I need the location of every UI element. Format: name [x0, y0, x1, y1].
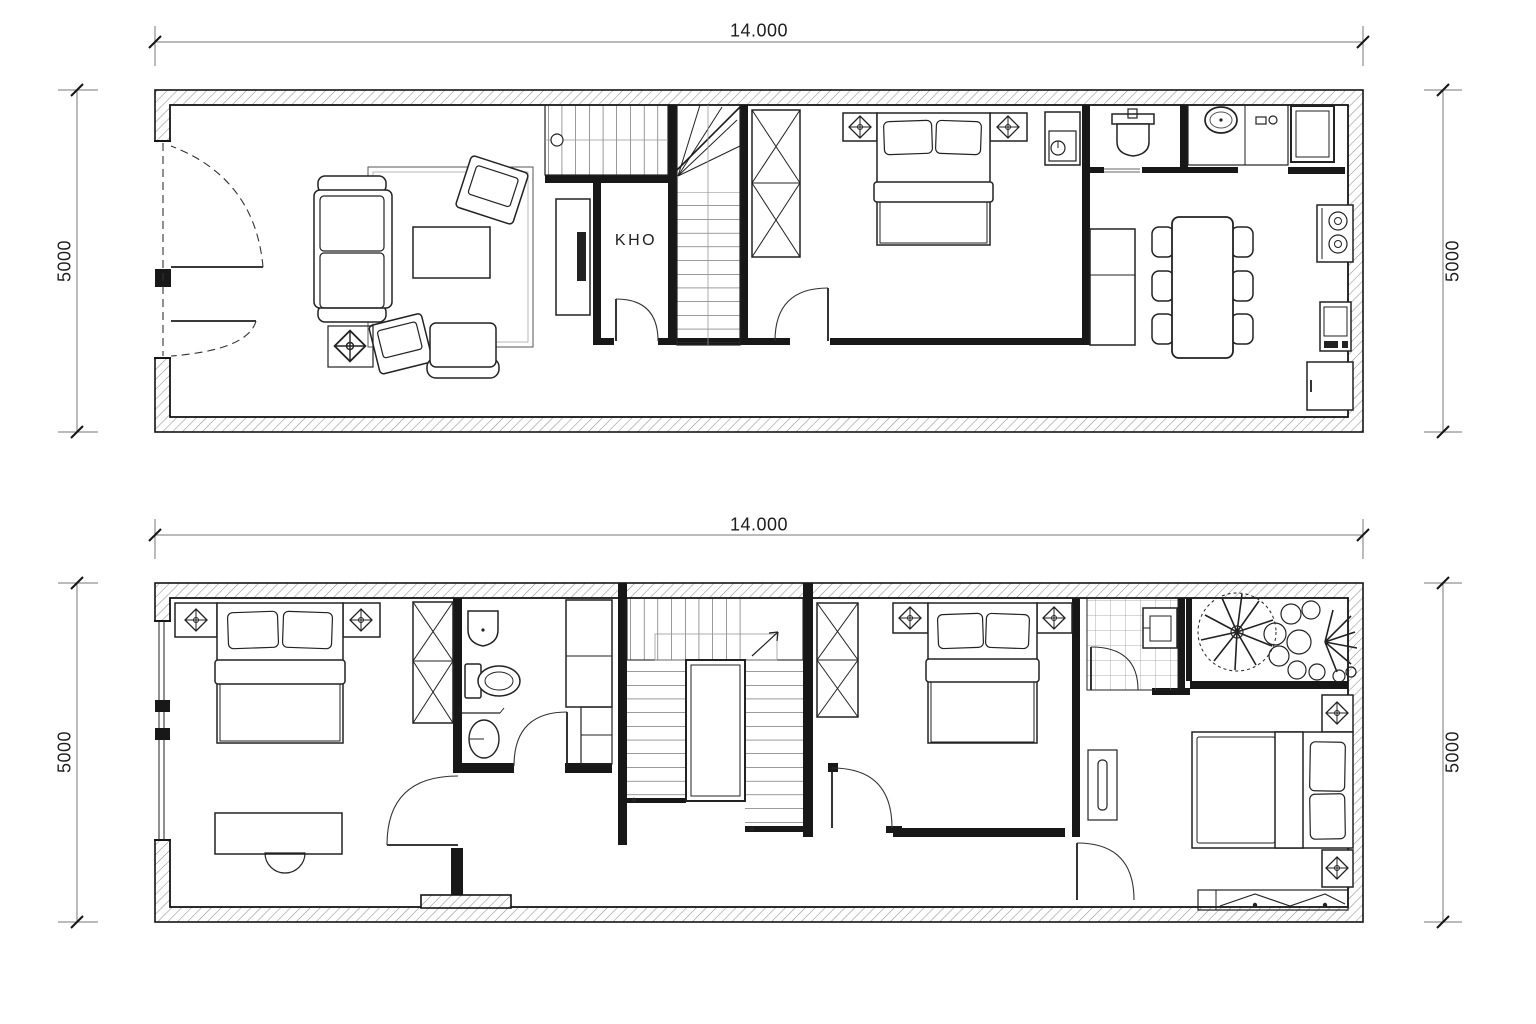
ground-floor-plan	[58, 26, 1462, 438]
toilet	[465, 664, 520, 698]
wash-basin	[1143, 608, 1177, 648]
room-label-storage: KHO	[615, 232, 657, 250]
appliance	[1320, 302, 1351, 351]
sofa	[314, 176, 392, 322]
floor-plan-drawing	[0, 0, 1536, 1024]
laundry-basin	[469, 720, 499, 758]
wardrobe	[413, 602, 453, 723]
dining-table	[1172, 217, 1233, 358]
double-bed	[874, 113, 993, 245]
dimension-label-width-top: 14.000	[730, 21, 788, 42]
dimension-label-width-bottom: 14.000	[730, 515, 788, 536]
kitchen-sink	[1205, 107, 1237, 133]
dimension-label-height-top-right: 5000	[1443, 240, 1464, 282]
double-bed	[215, 603, 345, 743]
armchair-with-ottoman	[427, 323, 499, 378]
corner-cabinet	[1307, 362, 1353, 410]
dimension-label-height-bottom-right: 5000	[1443, 731, 1464, 773]
floor-plan-sheet: 14.000 5000 5000 KHO 14.000 5000 5000	[0, 0, 1536, 1024]
wall-cabinet	[1045, 112, 1080, 165]
wardrobe-2	[817, 603, 858, 717]
dimension-label-height-bottom-left: 5000	[55, 731, 76, 773]
coffee-table	[413, 227, 490, 278]
dining-area	[1090, 217, 1253, 358]
cooktop	[1317, 205, 1353, 262]
sideboard	[1090, 229, 1135, 345]
double-bed	[926, 603, 1039, 743]
upper-floor-plan	[58, 519, 1462, 928]
dimension-label-height-top-left: 5000	[55, 240, 76, 282]
bathroom-2	[1087, 598, 1178, 690]
wash-basin	[468, 611, 498, 646]
wardrobe	[752, 110, 800, 257]
double-bed	[1192, 732, 1353, 848]
refrigerator	[1291, 106, 1334, 162]
tv-cabinet	[556, 199, 590, 315]
wash-basin	[1112, 109, 1154, 156]
